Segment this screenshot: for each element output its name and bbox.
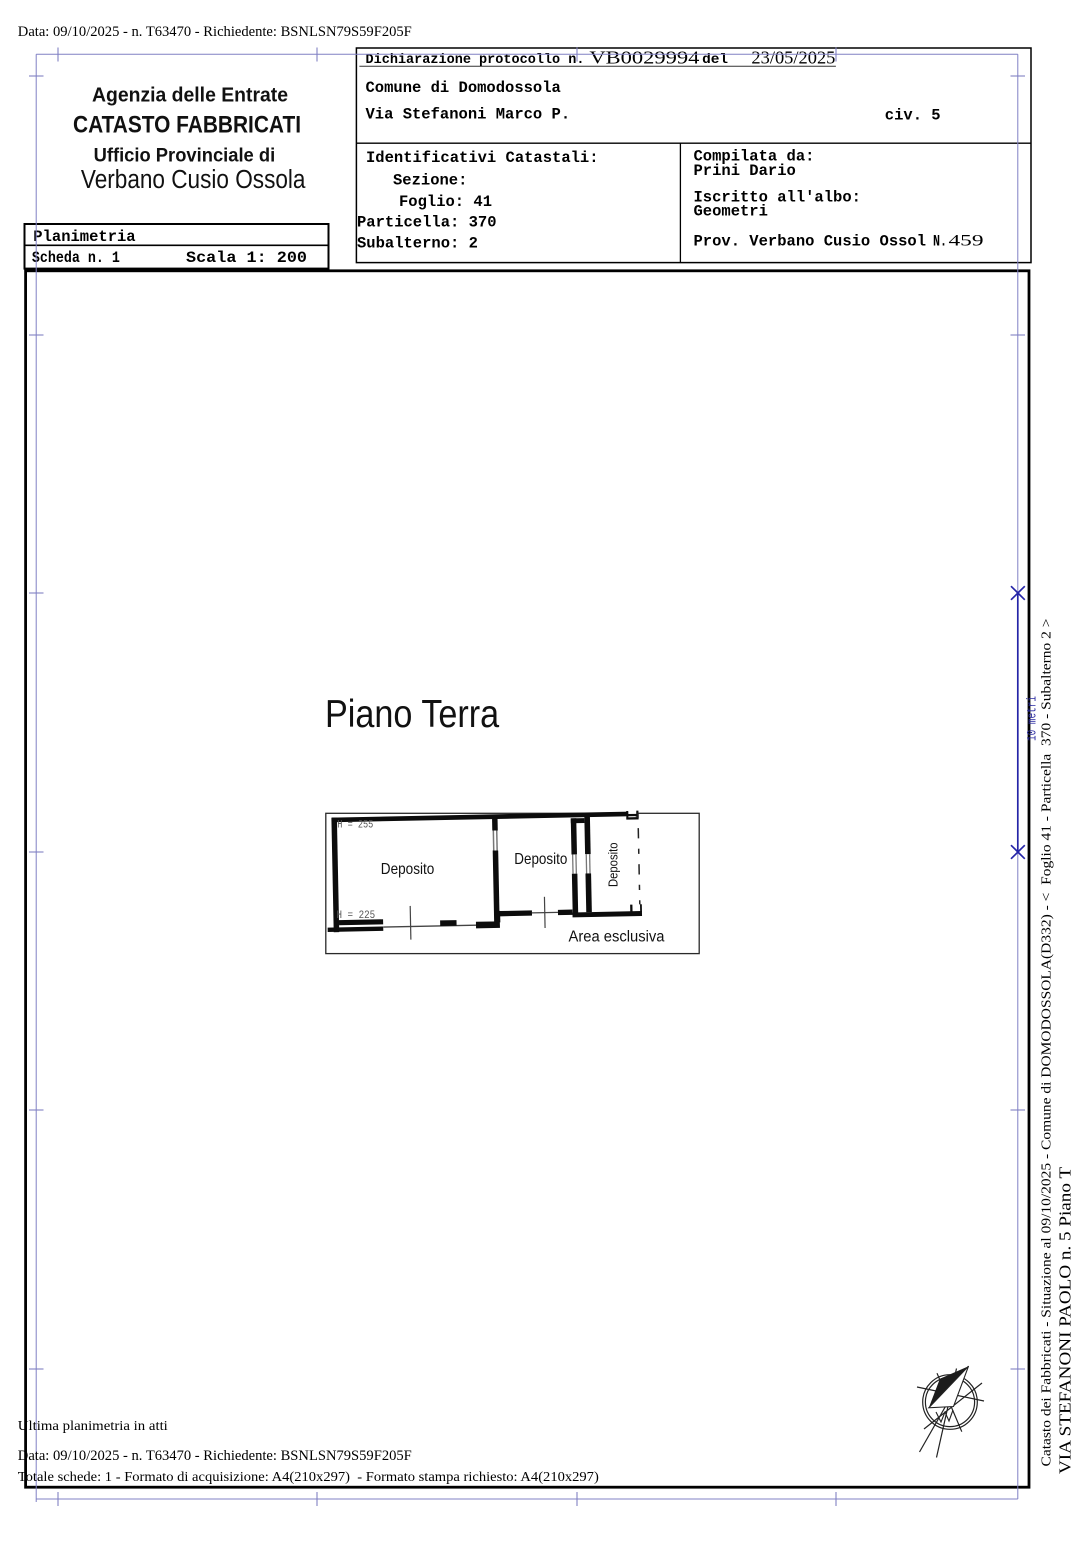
svg-text:Dichiarazione protocollo n.: Dichiarazione protocollo n. (366, 53, 585, 68)
svg-text:Via Stefanoni Marco P.: Via Stefanoni Marco P. (366, 106, 571, 124)
svg-text:Ultima planimetria in atti: Ultima planimetria in atti (18, 1418, 168, 1433)
svg-text:Geometri: Geometri (694, 203, 768, 221)
svg-text:Totale schede: 1 - Formato di: Totale schede: 1 - Formato di acquisizio… (18, 1469, 599, 1484)
svg-text:VB0029994: VB0029994 (589, 48, 699, 68)
svg-text:Prov. Verbano Cusio Ossol: Prov. Verbano Cusio Ossol (694, 232, 927, 250)
svg-text:Data: 09/10/2025 - n. T63470 -: Data: 09/10/2025 - n. T63470 - Richieden… (18, 24, 412, 40)
svg-text:Agenzia delle Entrate: Agenzia delle Entrate (92, 84, 288, 107)
svg-text:23/05/2025: 23/05/2025 (751, 48, 835, 68)
svg-text:Deposito: Deposito (606, 843, 621, 888)
svg-text:Ufficio Provinciale di: Ufficio Provinciale di (94, 146, 276, 167)
svg-text:Planimetria: Planimetria (33, 228, 135, 246)
svg-text:Scala 1: 200: Scala 1: 200 (186, 249, 307, 267)
svg-text:Piano Terra: Piano Terra (325, 693, 499, 736)
svg-text:civ. 5: civ. 5 (885, 107, 941, 125)
svg-text:Catasto dei Fabbricati - Situa: Catasto dei Fabbricati - Situazione al 0… (1040, 618, 1055, 1466)
svg-text:Particella: 370: Particella: 370 (357, 214, 497, 232)
svg-text:Sezione:: Sezione: (393, 172, 467, 190)
svg-text:Verbano Cusio Ossola: Verbano Cusio Ossola (81, 166, 306, 194)
svg-text:Area esclusiva: Area esclusiva (569, 928, 665, 945)
svg-text:H = 255: H = 255 (337, 820, 373, 832)
svg-text:CATASTO FABBRICATI: CATASTO FABBRICATI (73, 111, 301, 138)
svg-text:Identificativi Catastali:: Identificativi Catastali: (366, 149, 599, 167)
svg-text:Prini Dario: Prini Dario (694, 162, 796, 180)
svg-text:459: 459 (949, 233, 984, 250)
svg-text:Subalterno: 2: Subalterno: 2 (357, 235, 478, 253)
svg-text:H = 225: H = 225 (337, 910, 376, 922)
svg-text:10 metri: 10 metri (1025, 696, 1040, 741)
svg-text:del: del (702, 53, 728, 68)
svg-text:Scheda n. 1: Scheda n. 1 (32, 249, 120, 267)
svg-text:VIA STEFANONI PAOLO n. 5 Piano: VIA STEFANONI PAOLO n. 5 Piano T (1056, 1166, 1075, 1474)
svg-text:Deposito: Deposito (381, 861, 435, 878)
svg-text:Comune di Domodossola: Comune di Domodossola (366, 79, 561, 97)
svg-text:N.: N. (933, 232, 947, 250)
svg-text:Deposito: Deposito (514, 851, 567, 868)
svg-text:Data: 09/10/2025 - n. T63470 -: Data: 09/10/2025 - n. T63470 - Richieden… (18, 1448, 412, 1464)
svg-text:Foglio: 41: Foglio: 41 (399, 193, 492, 211)
